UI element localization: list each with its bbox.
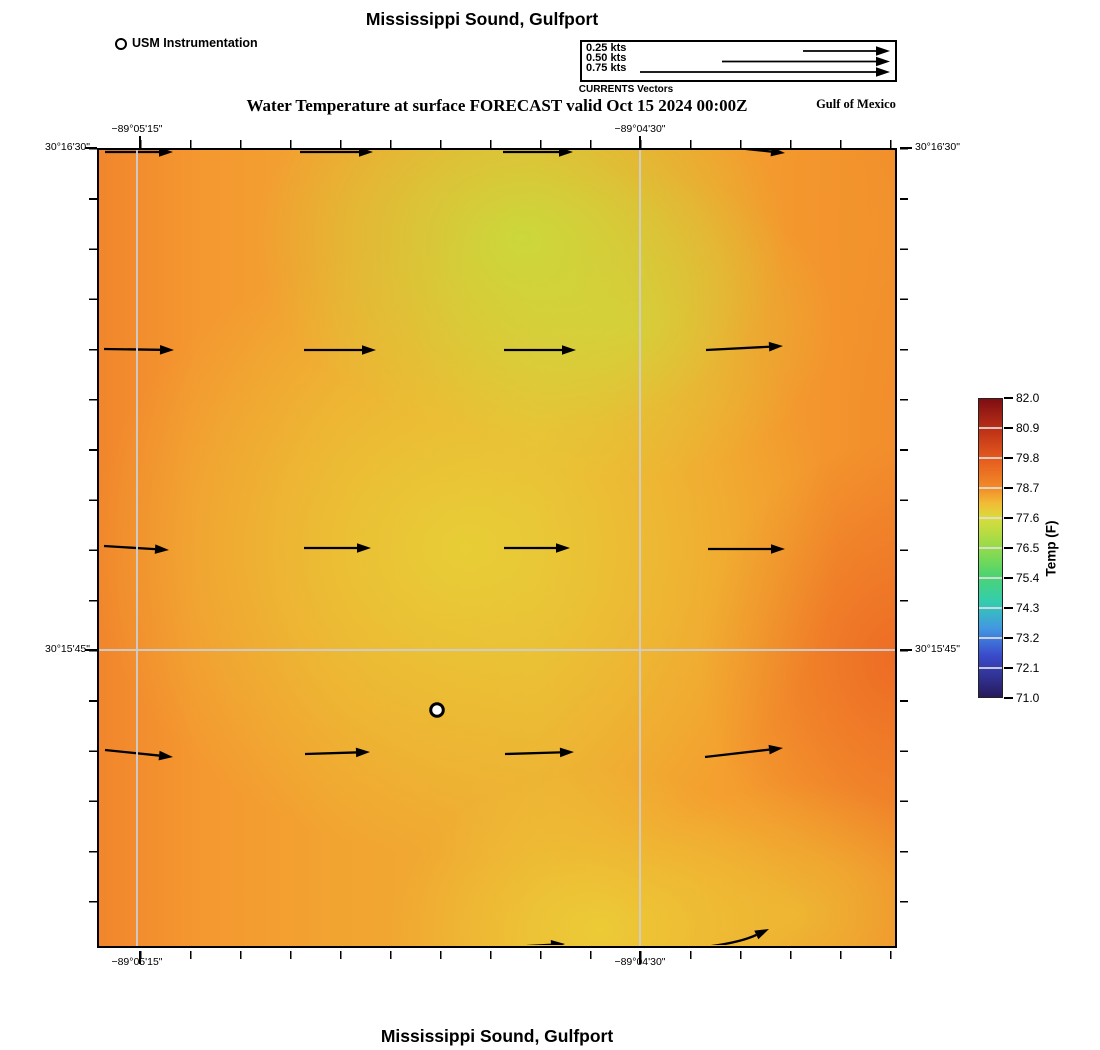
colorbar-tick [1004,577,1013,579]
colorbar-tick-label: 72.1 [1016,661,1039,675]
colorbar-gridline [979,487,1002,488]
colorbar-gridline [979,517,1002,518]
colorbar-gridline [979,457,1002,458]
colorbar-axis-label-wrap: Temp (F) [1036,398,1066,698]
x-axis-top-label-2: −89°04'30" [590,123,690,135]
colorbar-tick [1004,427,1013,429]
major-tick [900,147,912,149]
y-axis-left-label-1: 30°16'30" [18,141,90,153]
colorbar-tick [1004,487,1013,489]
right-axis-ticks [900,148,908,948]
colorbar-tick-label: 77.6 [1016,511,1039,525]
y-axis-left-label-2: 30°15'45" [18,643,90,655]
page-title: Mississippi Sound, Gulfport [97,9,867,30]
colorbar-tick-label: 79.8 [1016,451,1039,465]
colorbar-tick [1004,697,1013,699]
major-tick [85,649,97,651]
top-axis-ticks [97,140,897,148]
current-vectors-svg [99,150,894,945]
colorbar-tick [1004,517,1013,519]
colorbar-tick-label: 71.0 [1016,691,1039,705]
colorbar-gridline [979,667,1002,668]
colorbar-tick-label: 80.9 [1016,421,1039,435]
y-axis-right-label-1: 30°16'30" [915,141,960,153]
colorbar-tick [1004,547,1013,549]
station-marker-legend-icon [115,38,127,50]
bottom-axis-ticks [97,951,897,959]
legend-arrows-svg [582,42,894,79]
gridline-vertical [136,150,138,946]
major-tick [139,951,141,964]
major-tick [900,649,912,651]
y-axis-right-label-2: 30°15'45" [915,643,960,655]
station-marker [431,704,444,717]
major-tick [139,136,141,148]
colorbar-tick [1004,607,1013,609]
colorbar-axis-label: Temp (F) [1044,520,1059,576]
major-tick [85,147,97,149]
colorbar-gridline [979,637,1002,638]
footer-title: Mississippi Sound, Gulfport [97,1026,897,1047]
colorbar-gridline [979,547,1002,548]
colorbar-gridline [979,607,1002,608]
colorbar-tick [1004,457,1013,459]
colorbar-tick [1004,397,1013,399]
colorbar-gridline [979,577,1002,578]
x-axis-top-label-1: −89°05'15" [87,123,187,135]
colorbar-tick [1004,637,1013,639]
colorbar-tick-label: 82.0 [1016,391,1039,405]
colorbar-gridline [979,427,1002,428]
colorbar-tick-label: 78.7 [1016,481,1039,495]
colorbar-tick-label: 74.3 [1016,601,1039,615]
colorbar-tick-label: 76.5 [1016,541,1039,555]
station-legend-label: USM Instrumentation [132,36,258,50]
currents-caption: CURRENTS Vectors [576,84,676,95]
forecast-subtitle: Water Temperature at surface FORECAST va… [97,96,897,116]
major-tick [639,951,641,964]
gridline-horizontal [99,649,895,651]
major-tick [639,136,641,148]
currents-legend-box: 0.25 kts 0.50 kts 0.75 kts [580,40,897,82]
colorbar-tick-label: 75.4 [1016,571,1039,585]
colorbar-tick-label: 73.2 [1016,631,1039,645]
temperature-heatmap [97,148,897,948]
gridline-vertical [639,150,641,946]
plot-page: Mississippi Sound, Gulfport USM Instrume… [0,0,1100,1050]
left-axis-ticks [89,148,97,948]
colorbar-tick [1004,667,1013,669]
